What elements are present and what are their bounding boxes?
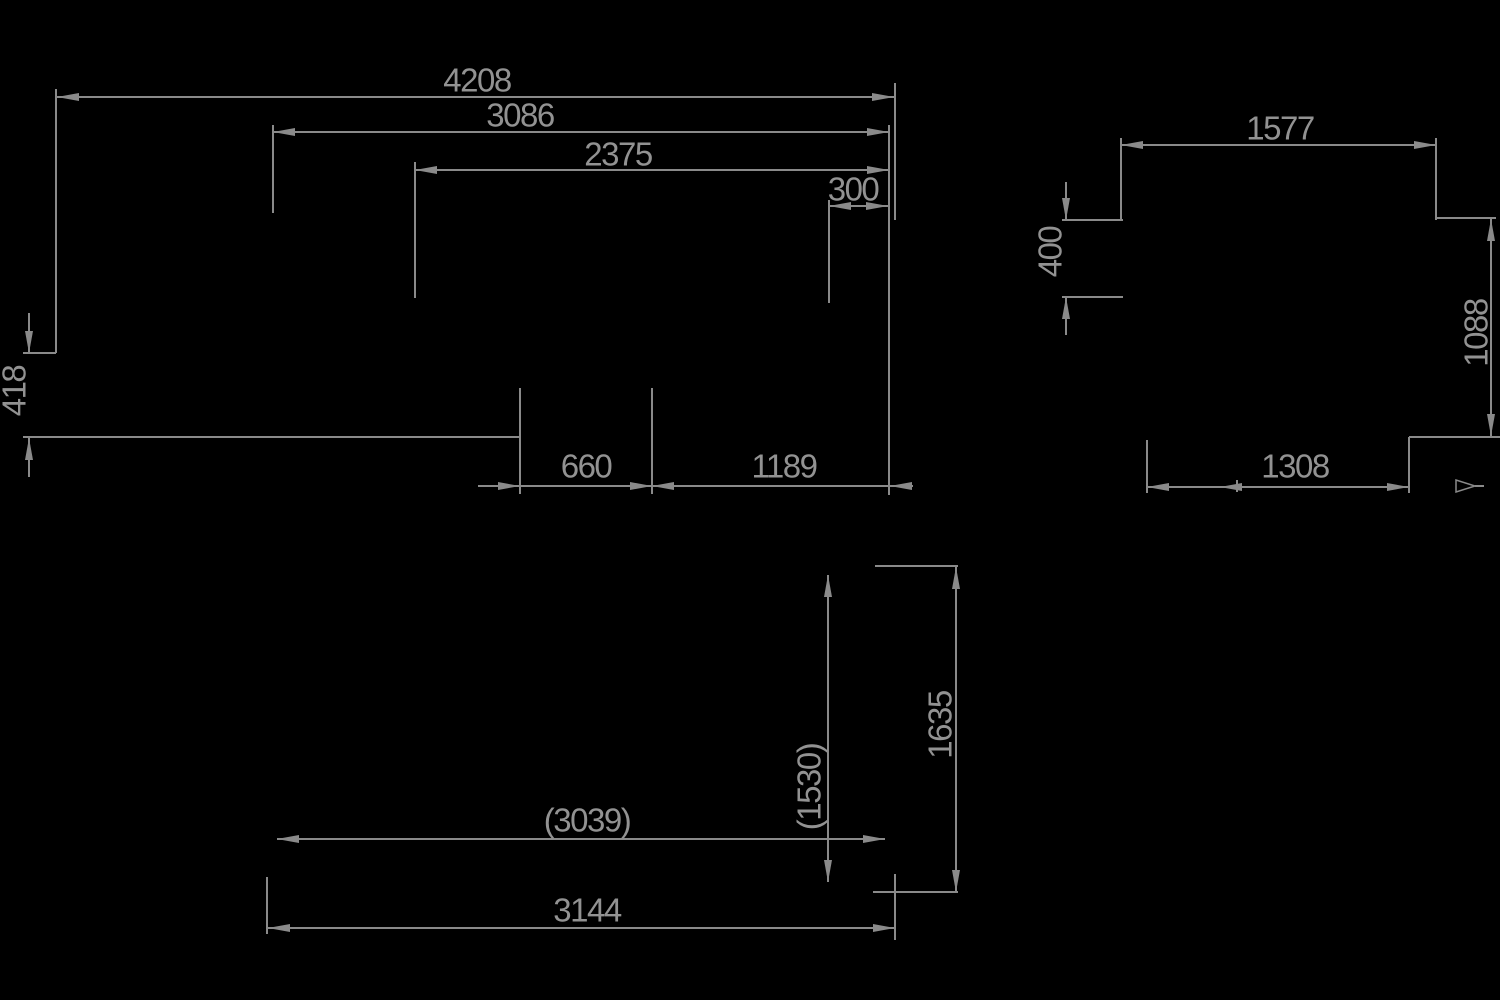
dimension-line: [827, 575, 829, 882]
extension-line: [1062, 296, 1123, 298]
arrowhead: [1387, 483, 1409, 491]
arrowhead: [1062, 297, 1070, 319]
arrowhead: [630, 482, 652, 490]
arrowhead: [1147, 483, 1169, 491]
extension-line: [894, 83, 896, 220]
arrowhead: [1220, 483, 1242, 491]
arrowhead: [273, 128, 295, 136]
extension-line: [1062, 219, 1123, 221]
extension-line: [1435, 138, 1437, 220]
extension-line: [888, 125, 890, 495]
dim-label-2375: 2375: [584, 138, 651, 171]
extension-line: [23, 352, 56, 354]
extension-line: [873, 891, 958, 893]
dim-label-1635: 1635: [924, 691, 957, 758]
arrowhead: [498, 482, 520, 490]
arrowhead: [1121, 141, 1143, 149]
arrowhead: [1487, 219, 1495, 241]
dim-label-1308: 1308: [1261, 450, 1328, 483]
dimension-line: [1147, 486, 1409, 488]
arrowhead: [25, 331, 33, 353]
tick-mark: [1236, 480, 1238, 492]
extension-line: [828, 200, 830, 303]
arrowhead: [268, 924, 290, 932]
dim-label-1577: 1577: [1246, 112, 1313, 145]
arrowhead: [873, 924, 895, 932]
dim-label-3144: 3144: [553, 894, 620, 927]
extension-line: [272, 125, 274, 213]
arrowhead: [57, 93, 79, 101]
dimension-line: [415, 169, 889, 171]
extension-line: [1408, 437, 1410, 493]
extension-line: [651, 388, 653, 494]
dim-label-400: 400: [1034, 227, 1067, 278]
dim-label-3039: (3039): [544, 804, 630, 837]
extension-line: [519, 388, 521, 494]
dim-label-4208: 4208: [443, 64, 510, 97]
extension-line: [1409, 436, 1500, 438]
ground-line: [23, 436, 520, 438]
view-direction-arrow-icon: [1455, 479, 1485, 493]
dimension-line: [478, 485, 913, 487]
dim-label-418: 418: [0, 366, 31, 417]
extension-line: [1146, 440, 1148, 493]
dim-label-1088: 1088: [1460, 299, 1493, 366]
arrowhead: [277, 835, 299, 843]
extension-line: [894, 874, 896, 940]
dim-label-3086: 3086: [486, 99, 553, 132]
extension-line: [414, 162, 416, 298]
arrowhead: [952, 870, 960, 892]
extension-line: [875, 565, 958, 567]
dimension-drawing: 4208 3086 2375 300 418: [0, 0, 1500, 1000]
arrowhead: [872, 93, 894, 101]
extension-line: [1120, 138, 1122, 220]
dim-label-1189: 1189: [752, 450, 817, 483]
arrowhead: [1487, 414, 1495, 436]
dim-label-300: 300: [828, 173, 879, 206]
extension-line: [55, 89, 57, 353]
arrowhead: [652, 482, 674, 490]
arrowhead: [890, 482, 912, 490]
dimension-line: [273, 131, 889, 133]
arrowhead: [824, 575, 832, 597]
arrowhead: [1062, 198, 1070, 220]
arrowhead: [25, 438, 33, 460]
extension-line: [266, 877, 268, 934]
arrowhead: [867, 128, 889, 136]
arrowhead: [415, 166, 437, 174]
arrowhead: [1414, 141, 1436, 149]
dim-label-660: 660: [561, 450, 612, 483]
arrowhead: [863, 835, 885, 843]
arrowhead: [952, 567, 960, 589]
arrowhead: [824, 860, 832, 882]
dim-label-1530: (1530): [793, 744, 826, 830]
